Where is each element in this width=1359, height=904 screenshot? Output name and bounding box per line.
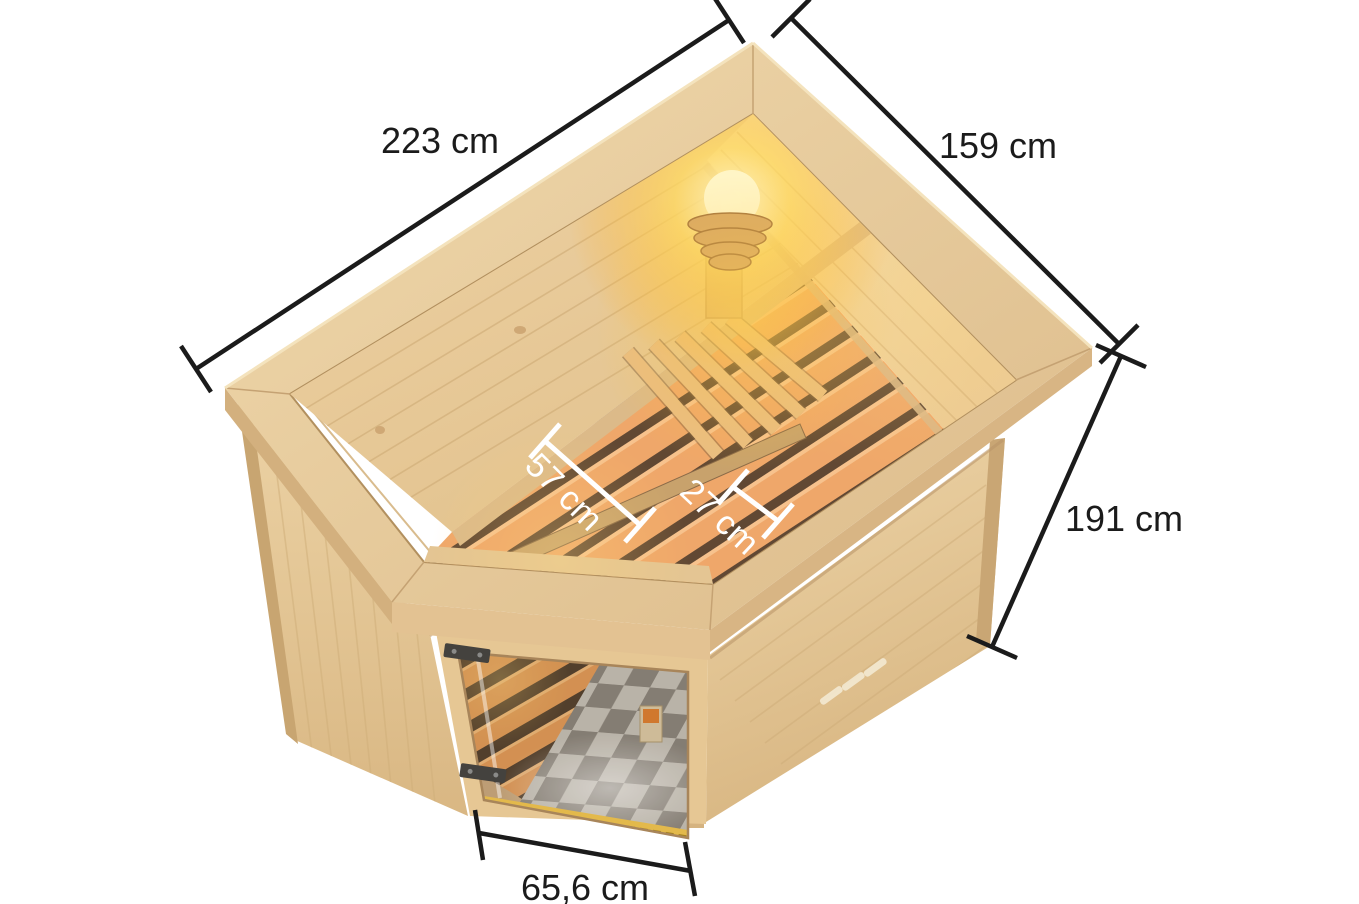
sauna-3d-render: 223 cm 159 cm 191 cm 65,6 cm 57 cm 27 cm	[0, 0, 1359, 904]
dimension-line	[479, 833, 691, 871]
dimension-label-191: 191 cm	[1065, 498, 1183, 539]
dimension-tick	[714, 0, 744, 43]
dimension-label-door-width: 65,6 cm	[521, 867, 649, 904]
dimension-tick	[181, 346, 211, 392]
product-dimension-image: 223 cm 159 cm 191 cm 65,6 cm 57 cm 27 cm	[0, 0, 1359, 904]
dimension-tick	[1096, 345, 1146, 367]
dimension-label-223: 223 cm	[381, 120, 499, 161]
dimension-label-159: 159 cm	[939, 125, 1057, 166]
wood-knot	[375, 426, 385, 434]
wood-knot	[514, 326, 526, 334]
